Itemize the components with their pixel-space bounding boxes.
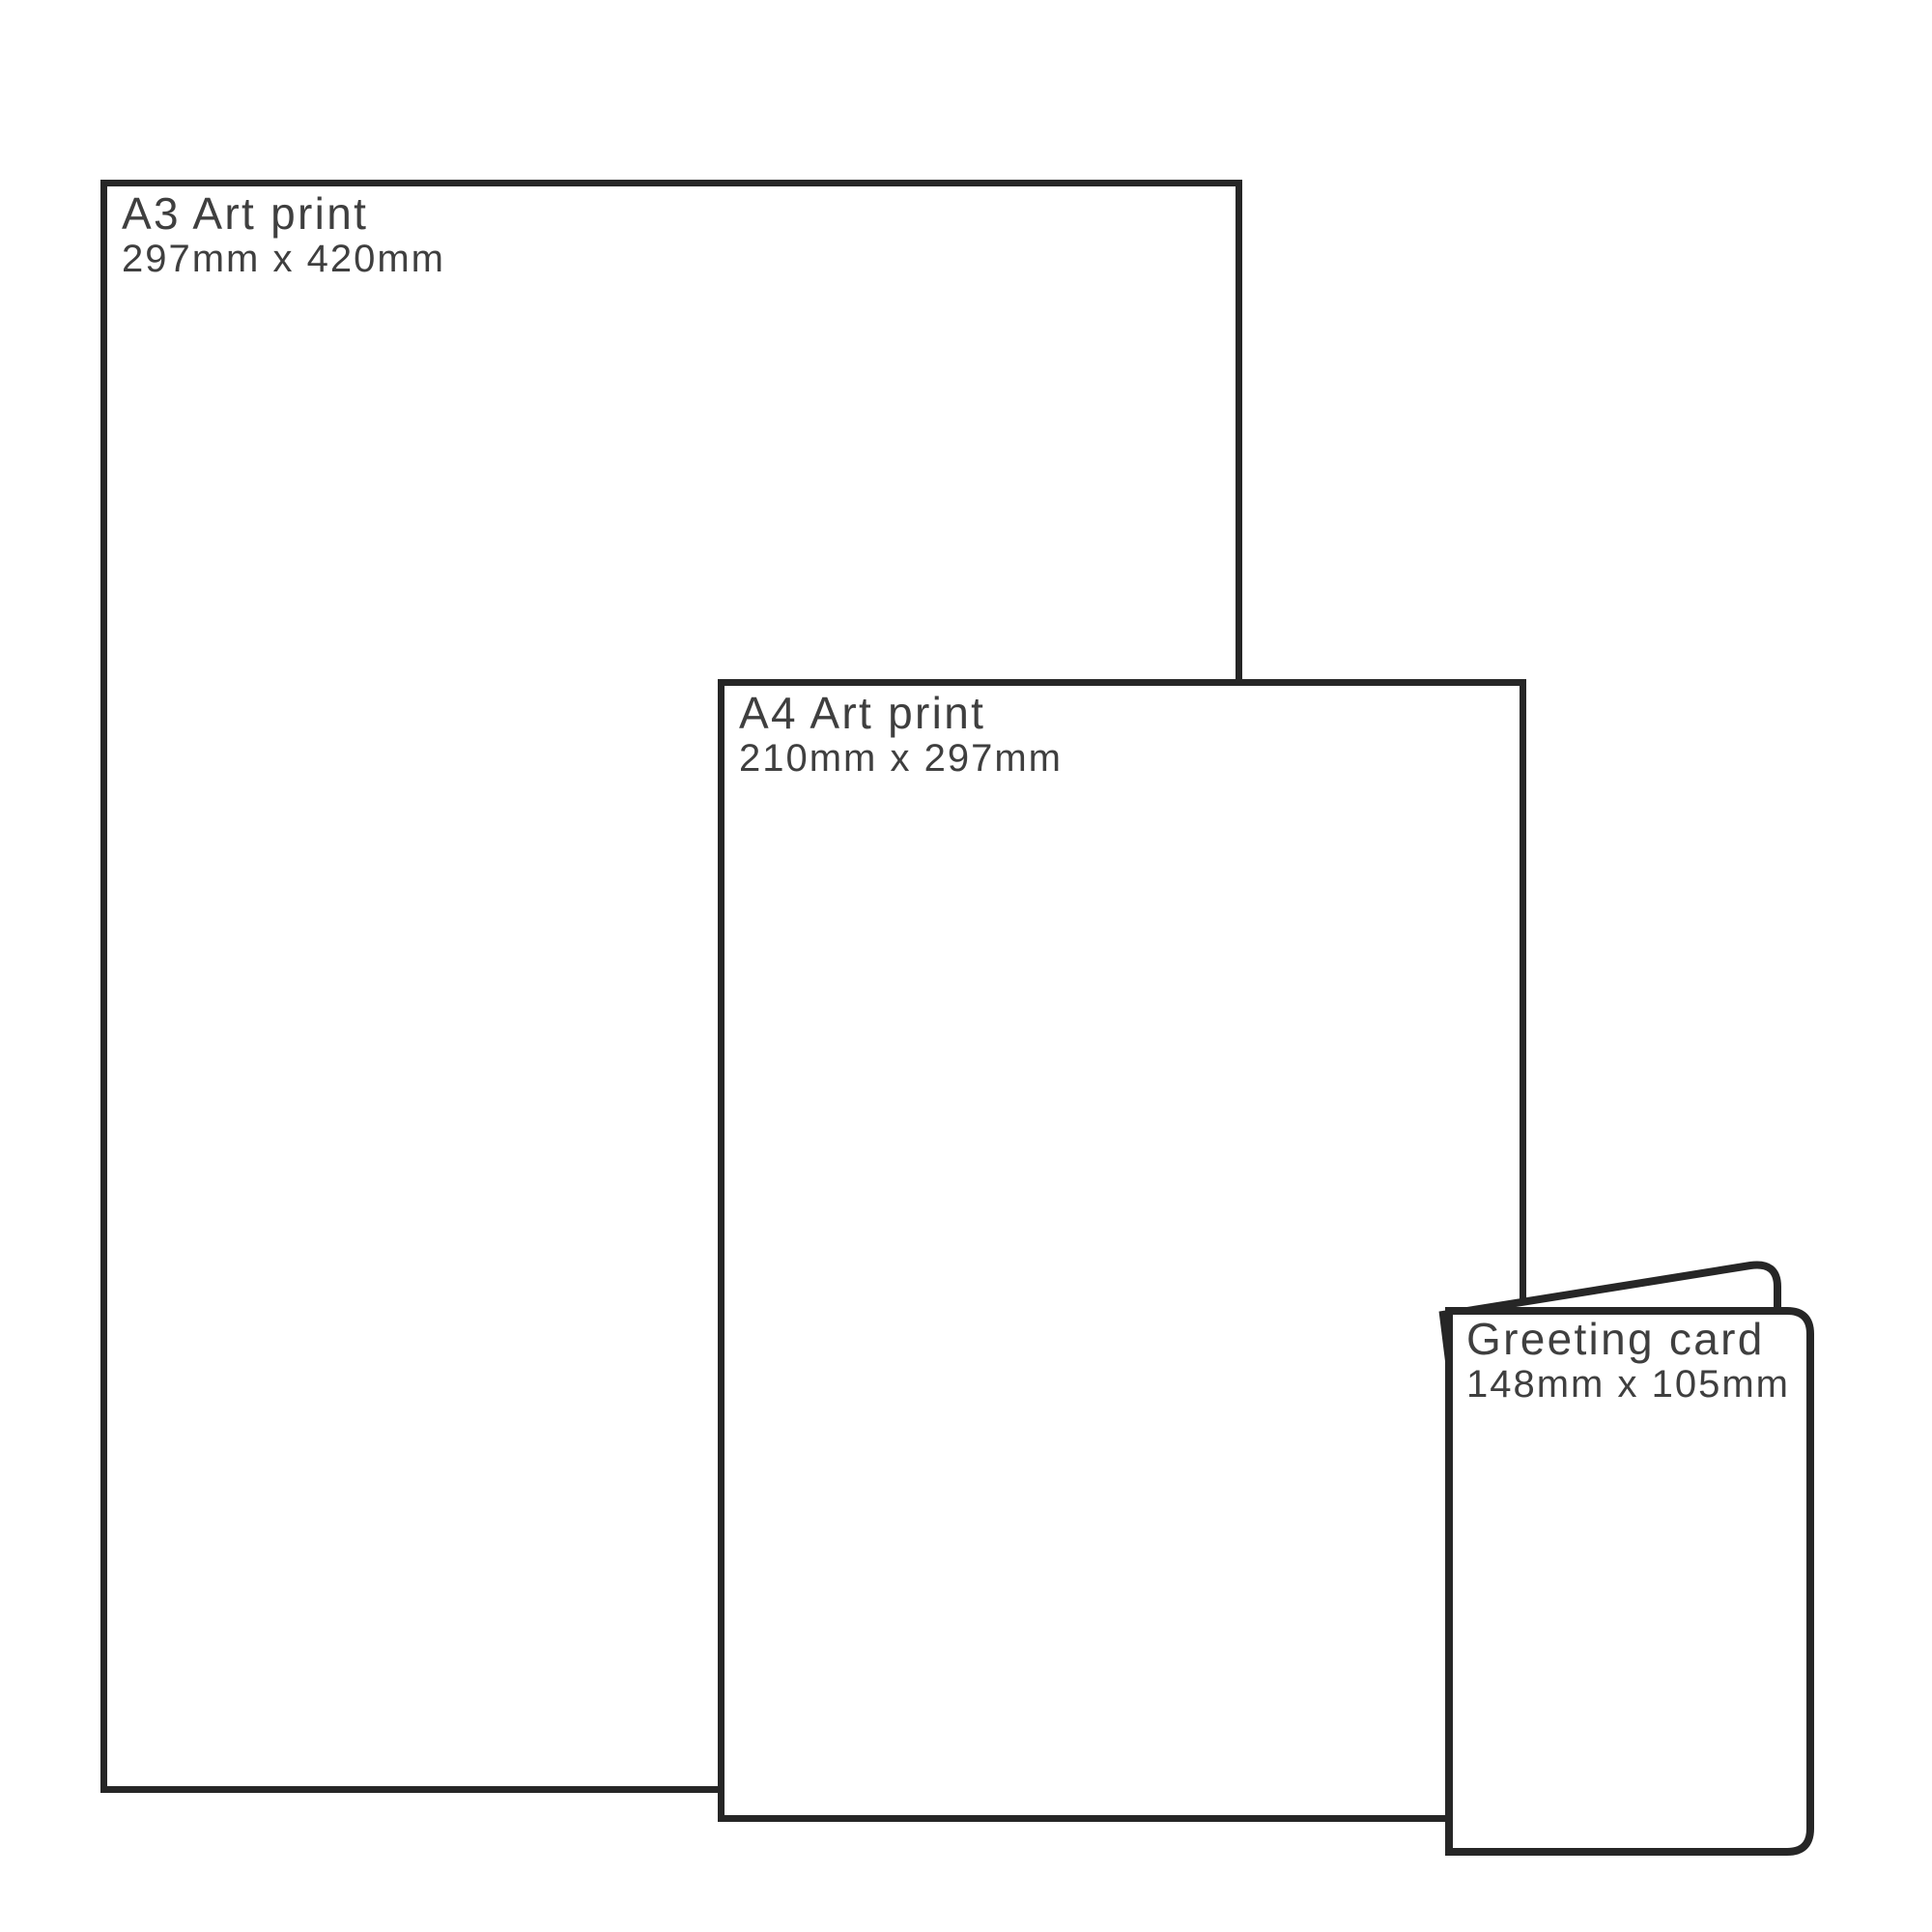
greeting-card-dimensions: 148mm x 105mm [1466, 1363, 1790, 1406]
a4-dimensions: 210mm x 297mm [739, 737, 1063, 780]
a4-label: A4 Art print 210mm x 297mm [739, 689, 1063, 780]
a4-title: A4 Art print [739, 689, 1063, 737]
a3-dimensions: 297mm x 420mm [122, 238, 445, 280]
a3-label: A3 Art print 297mm x 420mm [122, 189, 445, 280]
size-comparison-diagram: A3 Art print 297mm x 420mm A4 Art print … [0, 0, 1932, 1932]
greeting-card-label: Greeting card 148mm x 105mm [1466, 1315, 1790, 1406]
a3-title: A3 Art print [122, 189, 445, 238]
greeting-card-title: Greeting card [1466, 1315, 1790, 1363]
